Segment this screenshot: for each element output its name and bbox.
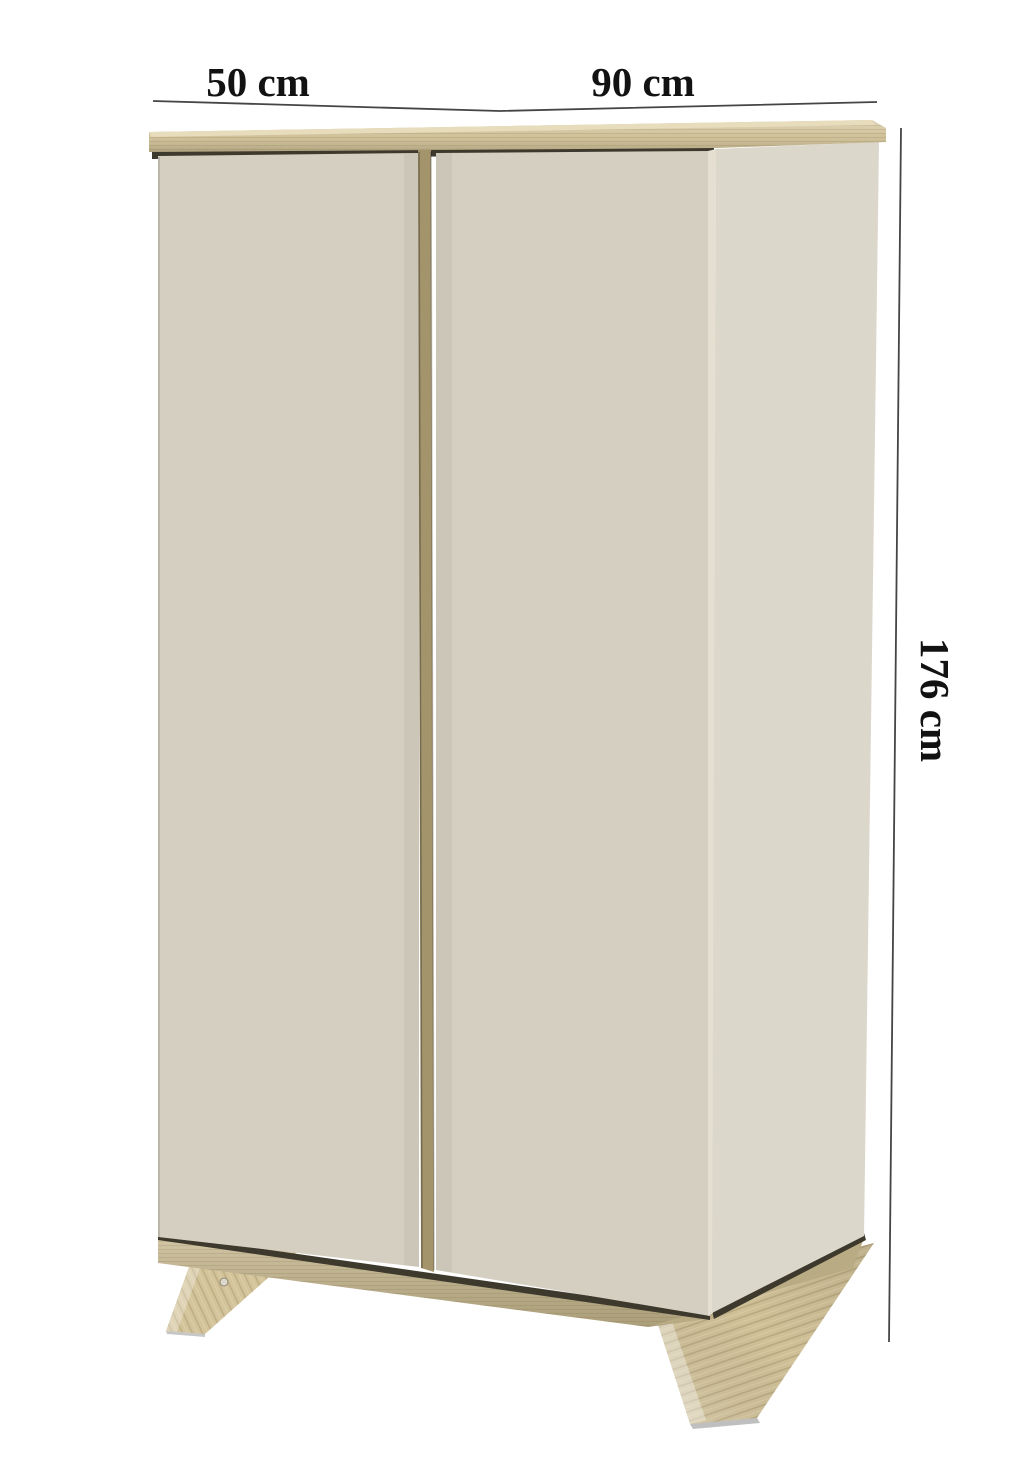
cabinet-body [152, 142, 879, 1316]
left-door-edge-shade [404, 153, 419, 1267]
wardrobe-render: 50 cm 90 cm 176 cm [0, 0, 1024, 1479]
left-leg-screw-hole [220, 1278, 228, 1286]
right-door [436, 151, 710, 1316]
height-label: 176 cm [912, 638, 958, 762]
width-label: 90 cm [591, 59, 695, 105]
side-panel-sheen [712, 142, 879, 1313]
depth-label: 50 cm [206, 59, 310, 105]
right-door-edge-shade [436, 153, 452, 1273]
furniture-dimension-figure: 50 cm 90 cm 176 cm [0, 0, 1024, 1479]
left-door [158, 153, 419, 1267]
